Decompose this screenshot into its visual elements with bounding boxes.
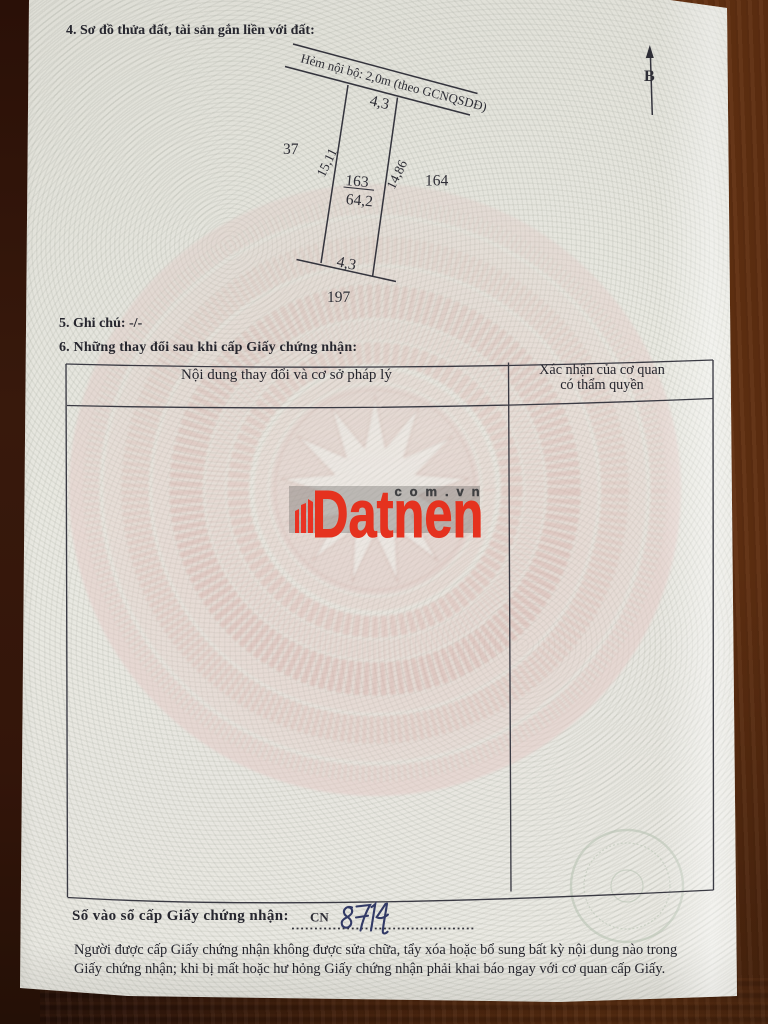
svg-text:Hẻm nội bộ: 2,0m (theo GCNQSDĐ: Hẻm nội bộ: 2,0m (theo GCNQSDĐ) <box>299 51 488 114</box>
svg-text:163: 163 <box>345 172 370 191</box>
svg-text:164: 164 <box>425 173 449 190</box>
svg-text:14,86: 14,86 <box>383 157 410 191</box>
svg-text:B: B <box>644 68 655 85</box>
svg-text:197: 197 <box>327 289 351 306</box>
svg-text:4,3: 4,3 <box>335 253 358 274</box>
svg-text:CN: CN <box>310 910 329 925</box>
svg-text:37: 37 <box>283 141 299 158</box>
svg-text:4,3: 4,3 <box>368 92 391 113</box>
svg-text:64,2: 64,2 <box>345 191 374 210</box>
